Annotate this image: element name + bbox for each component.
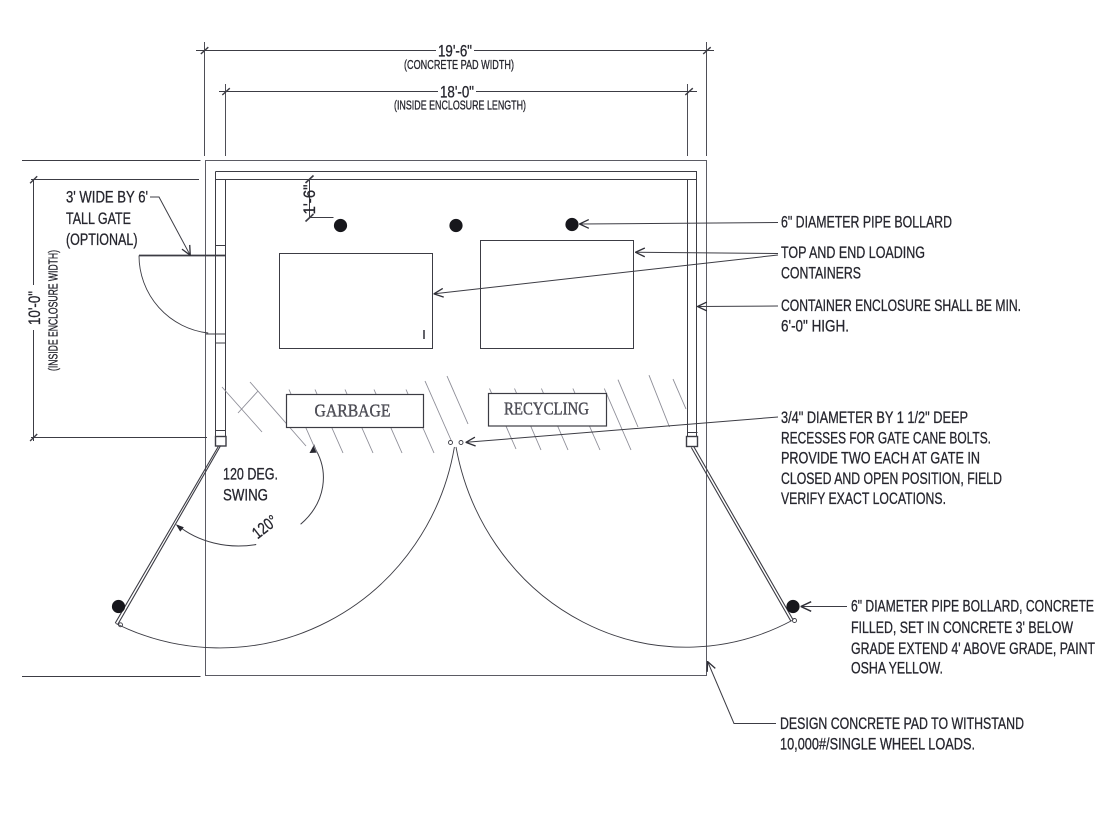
svg-text:GRADE EXTEND 4' ABOVE GRADE, P: GRADE EXTEND 4' ABOVE GRADE, PAINT [851, 640, 1095, 658]
svg-text:DESIGN CONCRETE PAD TO WITHSTA: DESIGN CONCRETE PAD TO WITHSTAND [780, 715, 1024, 733]
svg-text:(INSIDE ENCLOSURE LENGTH): (INSIDE ENCLOSURE LENGTH) [394, 99, 526, 113]
svg-text:(OPTIONAL): (OPTIONAL) [66, 231, 138, 249]
svg-text:10'-0": 10'-0" [26, 291, 44, 325]
svg-text:CONTAINERS: CONTAINERS [781, 265, 861, 283]
svg-text:6" DIAMETER PIPE BOLLARD, CONC: 6" DIAMETER PIPE BOLLARD, CONCRETE [851, 598, 1094, 616]
svg-text:1'-6": 1'-6" [301, 184, 319, 214]
svg-text:3/4" DIAMETER BY 1 1/2" DEEP: 3/4" DIAMETER BY 1 1/2" DEEP [781, 409, 968, 427]
svg-text:120°: 120° [249, 512, 281, 543]
svg-text:OSHA YELLOW.: OSHA YELLOW. [851, 660, 943, 678]
svg-text:10,000#/SINGLE WHEEL LOADS.: 10,000#/SINGLE WHEEL LOADS. [780, 735, 975, 753]
svg-text:RECESSES FOR GATE CANE BOLTS.: RECESSES FOR GATE CANE BOLTS. [781, 429, 991, 447]
svg-text:TOP AND END LOADING: TOP AND END LOADING [781, 244, 925, 262]
svg-text:RECYCLING: RECYCLING [504, 399, 589, 419]
svg-text:6" DIAMETER PIPE BOLLARD: 6" DIAMETER PIPE BOLLARD [781, 214, 952, 232]
svg-text:(INSIDE ENCLOSURE WIDTH): (INSIDE ENCLOSURE WIDTH) [47, 250, 61, 371]
svg-text:VERIFY EXACT LOCATIONS.: VERIFY EXACT LOCATIONS. [781, 490, 946, 508]
svg-text:GARBAGE: GARBAGE [315, 401, 391, 421]
svg-text:PROVIDE TWO EACH AT GATE IN: PROVIDE TWO EACH AT GATE IN [781, 450, 980, 468]
svg-text:6'-0" HIGH.: 6'-0" HIGH. [781, 318, 849, 336]
svg-text:SWING: SWING [223, 487, 268, 505]
svg-text:FILLED, SET IN CONCRETE 3' BEL: FILLED, SET IN CONCRETE 3' BELOW [851, 619, 1073, 637]
svg-text:(CONCRETE PAD WIDTH): (CONCRETE PAD WIDTH) [404, 58, 514, 72]
svg-text:120 DEG.: 120 DEG. [223, 466, 278, 484]
svg-text:CONTAINER ENCLOSURE SHALL BE M: CONTAINER ENCLOSURE SHALL BE MIN. [781, 297, 1021, 315]
svg-text:TALL GATE: TALL GATE [66, 210, 131, 228]
svg-text:CLOSED AND OPEN POSITION, FIEL: CLOSED AND OPEN POSITION, FIELD [781, 470, 1002, 488]
svg-text:3' WIDE BY 6': 3' WIDE BY 6' [66, 189, 148, 207]
